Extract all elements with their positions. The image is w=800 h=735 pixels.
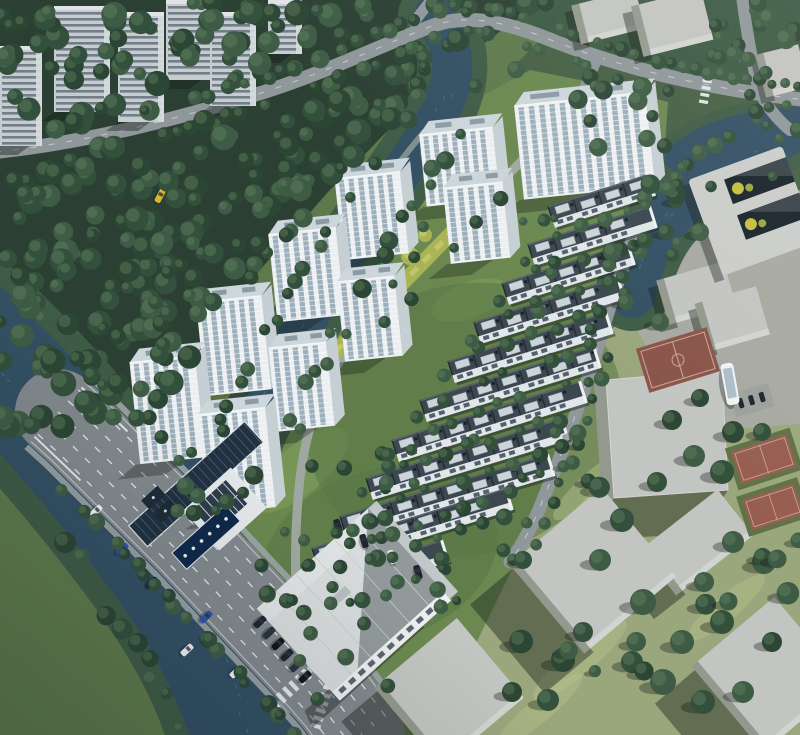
- rendering-frame: Aerial rendering of a riverside resident…: [0, 0, 800, 735]
- lighting-layer: [0, 0, 800, 735]
- aerial-rendering: Aerial rendering of a riverside resident…: [0, 0, 800, 735]
